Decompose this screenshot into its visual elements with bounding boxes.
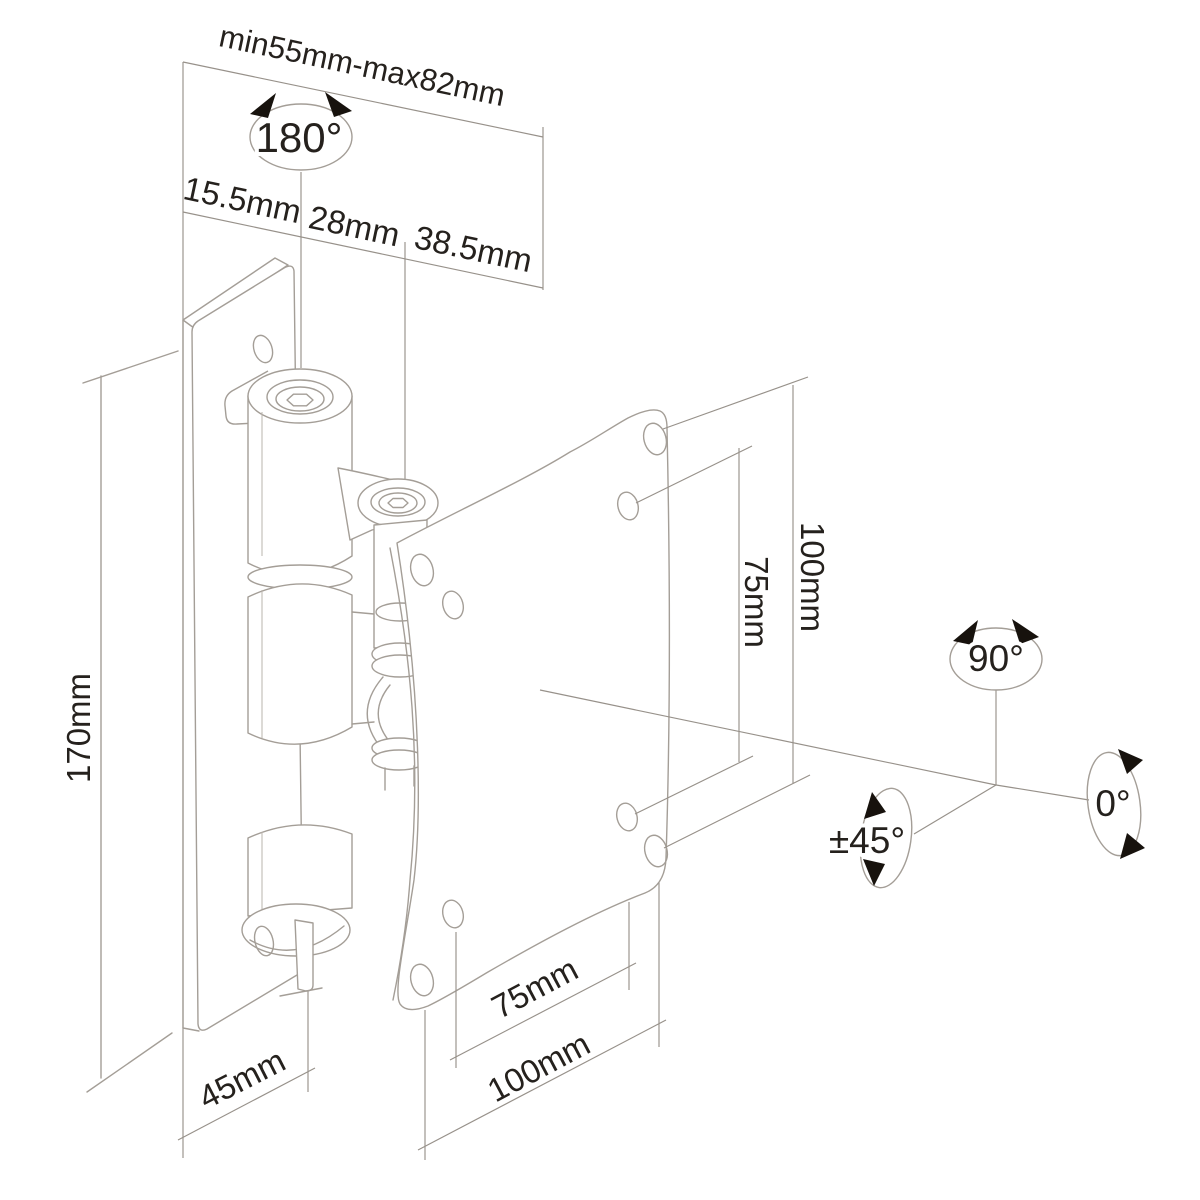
hinge-top-cylinder-cap bbox=[248, 369, 352, 423]
tilt-ring-inner bbox=[378, 685, 390, 741]
hinge-foot bbox=[295, 920, 313, 991]
vesa-horizontal-100-label: 100mm bbox=[481, 1025, 596, 1109]
plate-height-label: 170mm bbox=[60, 673, 97, 783]
wall bbox=[83, 351, 178, 1092]
hinge-middle-segment bbox=[248, 584, 374, 744]
offset-38-5-label: 38.5mm bbox=[411, 218, 535, 279]
wall-bottom-edge bbox=[87, 1033, 172, 1092]
axis-to-neutral-ellipse bbox=[996, 785, 1089, 800]
vesa-vertical-100-label: 100mm bbox=[794, 522, 831, 632]
tilt-ring-outer bbox=[367, 677, 383, 749]
joint-edge bbox=[352, 612, 374, 614]
tick-line bbox=[663, 377, 808, 429]
plate-width-label: 45mm bbox=[193, 1041, 291, 1116]
technical-drawing-canvas: min55mm-max82mm 180° 15.5mm 28mm 38.5mm … bbox=[0, 0, 1200, 1200]
offset-15-5-label: 15.5mm bbox=[180, 169, 304, 230]
offset-28-label: 28mm bbox=[306, 198, 403, 253]
wall-top-edge bbox=[83, 351, 178, 383]
tilt-angle-label: ±45° bbox=[829, 820, 905, 861]
joint-edge bbox=[352, 722, 374, 724]
hinge-lower-body bbox=[248, 825, 352, 916]
rotation-arrow-icon bbox=[864, 792, 886, 819]
tick-line bbox=[664, 775, 810, 848]
neutral-angle-label: 0° bbox=[1095, 783, 1130, 824]
wall-plate-bottom-edge bbox=[183, 1028, 199, 1031]
rotation-arrow-icon bbox=[863, 859, 885, 886]
diagram-page: min55mm-max82mm 180° 15.5mm 28mm 38.5mm … bbox=[0, 0, 1200, 1200]
swivel-angle-label: 180° bbox=[256, 114, 343, 161]
hinge-middle-body bbox=[248, 584, 352, 744]
vesa-vertical-75-label: 75mm bbox=[738, 556, 775, 648]
rotation-arrow-icon bbox=[1118, 749, 1143, 774]
rotation-arrow-icon bbox=[1120, 833, 1145, 859]
axis-to-tilt-ellipse bbox=[914, 785, 996, 834]
rotate-angle-label: 90° bbox=[968, 638, 1024, 679]
